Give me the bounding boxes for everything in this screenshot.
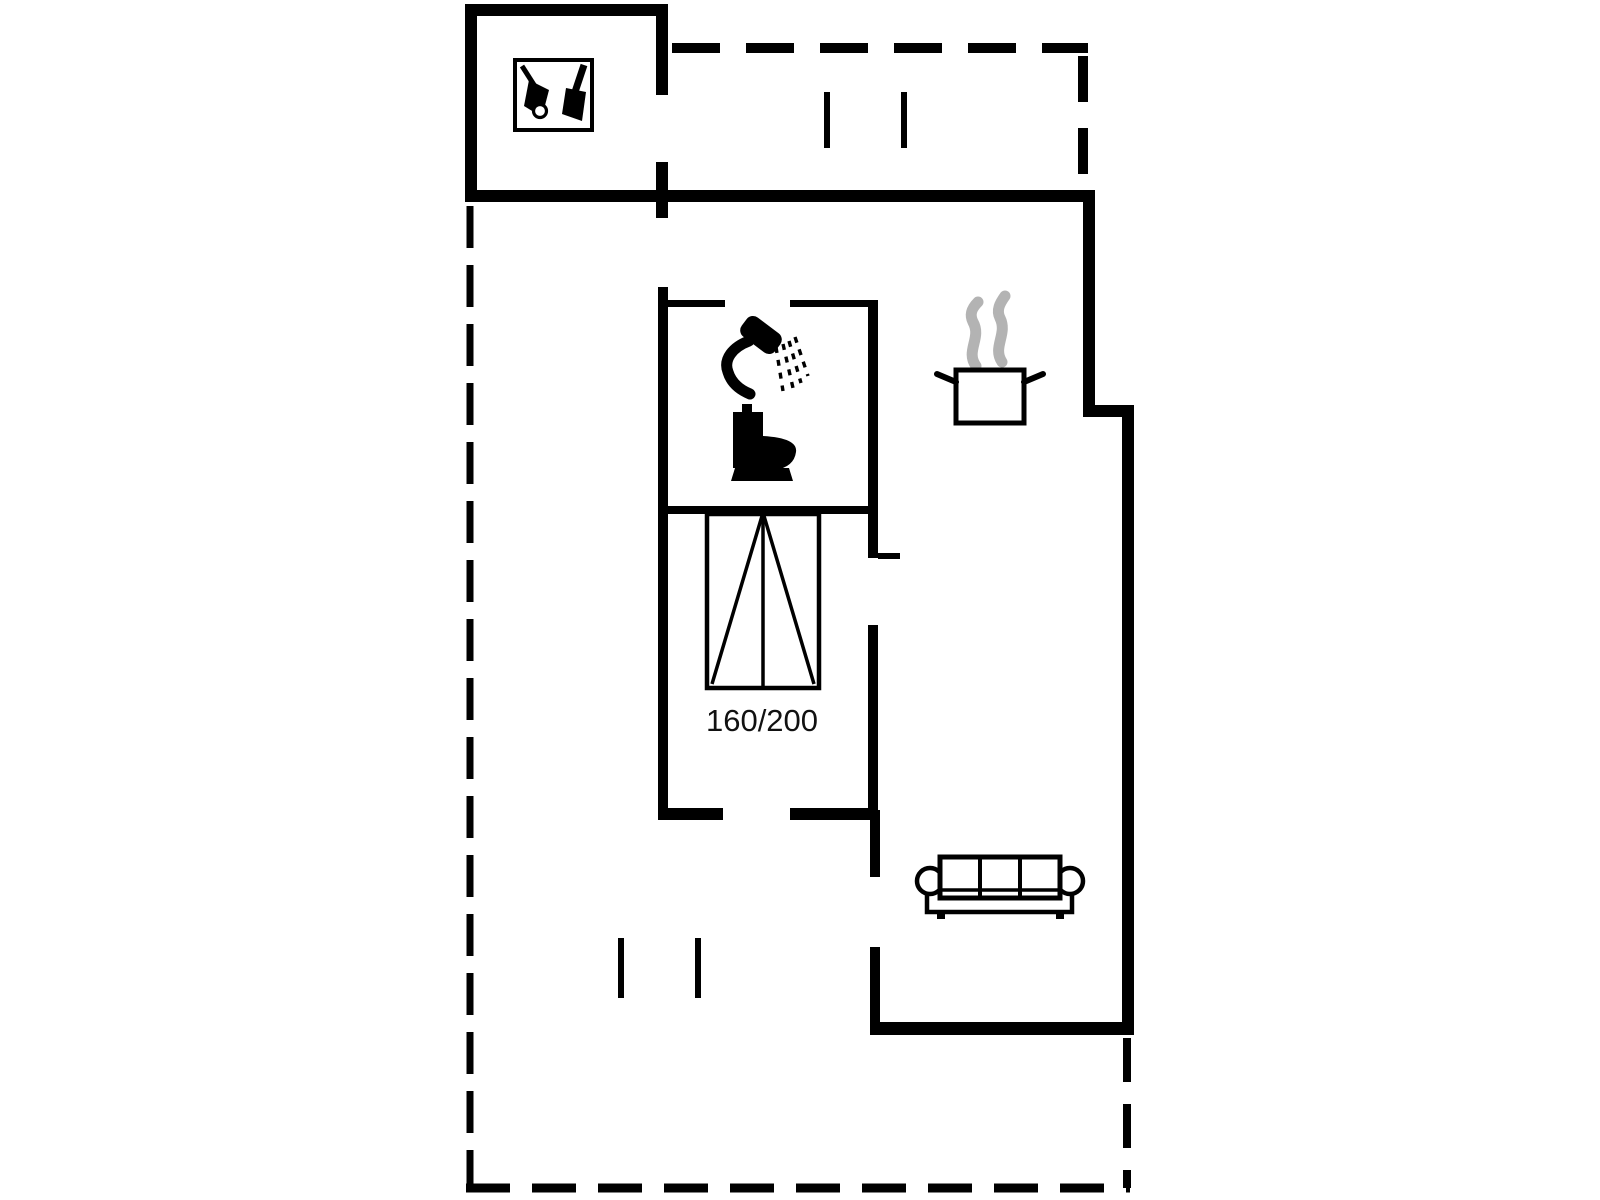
wall-bedroom-door-tick: [878, 553, 900, 559]
wall-bath-top-left: [668, 300, 725, 307]
wall-living-bottom: [870, 1022, 1134, 1035]
shower-hose: [727, 341, 750, 394]
bed-size-label: 160/200: [706, 703, 818, 738]
post-left-terrace-2: [695, 938, 701, 998]
wall-bath-top-right: [790, 300, 878, 307]
wall-living-left-upper: [870, 810, 880, 877]
garden-tools-icon: [515, 60, 592, 130]
cooking-pot-icon: [937, 296, 1043, 423]
wall-top-strip-bottom: [465, 190, 1094, 202]
pot-handle-left: [937, 374, 956, 382]
sofa-back: [940, 857, 1060, 898]
wall-shed-left: [465, 4, 477, 202]
toilet-bowl: [763, 436, 796, 470]
shower-icon: [727, 313, 808, 394]
floor-plan-drawing: 160/200: [0, 0, 1600, 1200]
wall-shed-right-upper: [656, 4, 668, 95]
wall-bedroom-bottom-right: [790, 808, 878, 820]
wall-block-left: [658, 287, 668, 820]
pot-handle-right: [1024, 374, 1043, 382]
wall-shed-top: [465, 4, 668, 16]
sofa-leg-right: [1056, 912, 1064, 919]
post-left-terrace-1: [618, 938, 624, 998]
sofa-leg-left: [937, 912, 945, 919]
toilet-base: [731, 468, 793, 481]
shower-spray: [776, 337, 808, 391]
steam-left: [971, 302, 978, 366]
toilet-button: [742, 404, 752, 413]
steam-right: [998, 296, 1005, 362]
wall-bedroom-bottom-left: [658, 808, 723, 820]
floor-plan-canvas: 160/200: [0, 0, 1600, 1200]
wall-right-upper: [1083, 190, 1095, 417]
post-top-terrace-1: [824, 92, 830, 148]
wall-block-right-upper: [868, 300, 878, 558]
toilet-tank: [733, 412, 763, 468]
post-top-terrace-2: [901, 92, 907, 148]
double-bed-icon: [707, 514, 819, 688]
wall-block-right-lower: [868, 625, 878, 820]
wall-living-left-lower: [870, 947, 880, 1035]
wall-right-lower: [1122, 405, 1134, 1035]
pot-body: [956, 370, 1024, 423]
wheelbarrow-wheel: [534, 105, 547, 118]
toilet-icon: [731, 404, 796, 481]
sofa-icon: [917, 857, 1083, 919]
